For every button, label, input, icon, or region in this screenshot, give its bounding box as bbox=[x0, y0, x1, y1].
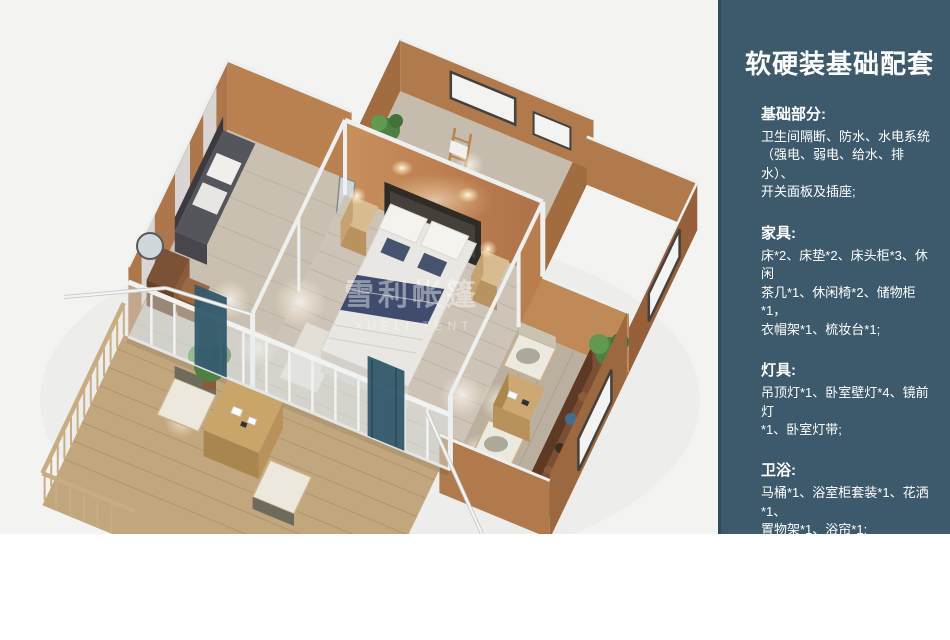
section-heading: 卫浴: bbox=[761, 459, 936, 480]
table-lamp-glow bbox=[479, 240, 497, 258]
section-heading: 基础部分: bbox=[761, 103, 936, 124]
watermark-cn: 雪利帐篷 bbox=[344, 279, 480, 312]
section-body: 吊顶灯*1、卧室壁灯*4、镜前灯 *1、卧室灯带; bbox=[761, 384, 936, 439]
section-heading: 灯具: bbox=[761, 359, 936, 380]
section-body: 强化木地板、卫生间防滑防潮石 塑板; bbox=[761, 585, 936, 640]
teal-curtain bbox=[368, 356, 405, 451]
spec-section-lighting: 灯具: 吊顶灯*1、卧室壁灯*4、镜前灯 *1、卧室灯带; bbox=[761, 359, 936, 439]
spec-section-flooring: 地面: 强化木地板、卫生间防滑防潮石 塑板; bbox=[761, 560, 936, 640]
section-heading: 地面: bbox=[761, 560, 936, 581]
floorplan-illustration-area: 雪利帐篷 XUELI TENT bbox=[0, 0, 718, 534]
round-mirror bbox=[137, 233, 163, 259]
section-body: 床*2、床垫*2、床头柜*3、休闲 茶几*1、休闲椅*2、储物柜*1， 衣帽架*… bbox=[761, 247, 936, 339]
spec-section-furniture: 家具: 床*2、床垫*2、床头柜*3、休闲 茶几*1、休闲椅*2、储物柜*1， … bbox=[761, 222, 936, 339]
spec-section-basics: 基础部分: 卫生间隔断、防水、水电系统 （强电、弱电、给水、排水）、 开关面板及… bbox=[761, 103, 936, 202]
spec-panel: 软硬装基础配套 基础部分: 卫生间隔断、防水、水电系统 （强电、弱电、给水、排水… bbox=[718, 0, 950, 534]
light-glow bbox=[440, 373, 484, 417]
section-body: 马桶*1、浴室柜套装*1、花洒*1、 置物架*1、浴帘*1; bbox=[761, 484, 936, 539]
floorplan-3d-render: 雪利帐篷 XUELI TENT bbox=[0, 0, 716, 534]
spec-section-bathroom: 卫浴: 马桶*1、浴室柜套装*1、花洒*1、 置物架*1、浴帘*1; bbox=[761, 459, 936, 539]
panel-title: 软硬装基础配套 bbox=[745, 44, 936, 81]
spec-sections: 基础部分: 卫生间隔断、防水、水电系统 （强电、弱电、给水、排水）、 开关面板及… bbox=[761, 103, 936, 640]
wall-sconce-glow bbox=[391, 160, 413, 176]
section-heading: 家具: bbox=[761, 222, 936, 243]
section-body: 卫生间隔断、防水、水电系统 （强电、弱电、给水、排水）、 开关面板及插座; bbox=[761, 128, 936, 202]
watermark: 雪利帐篷 XUELI TENT bbox=[344, 279, 480, 333]
wall-sconce-glow bbox=[457, 187, 479, 203]
table-lamp-glow bbox=[348, 187, 366, 205]
watermark-en: XUELI TENT bbox=[354, 319, 473, 333]
